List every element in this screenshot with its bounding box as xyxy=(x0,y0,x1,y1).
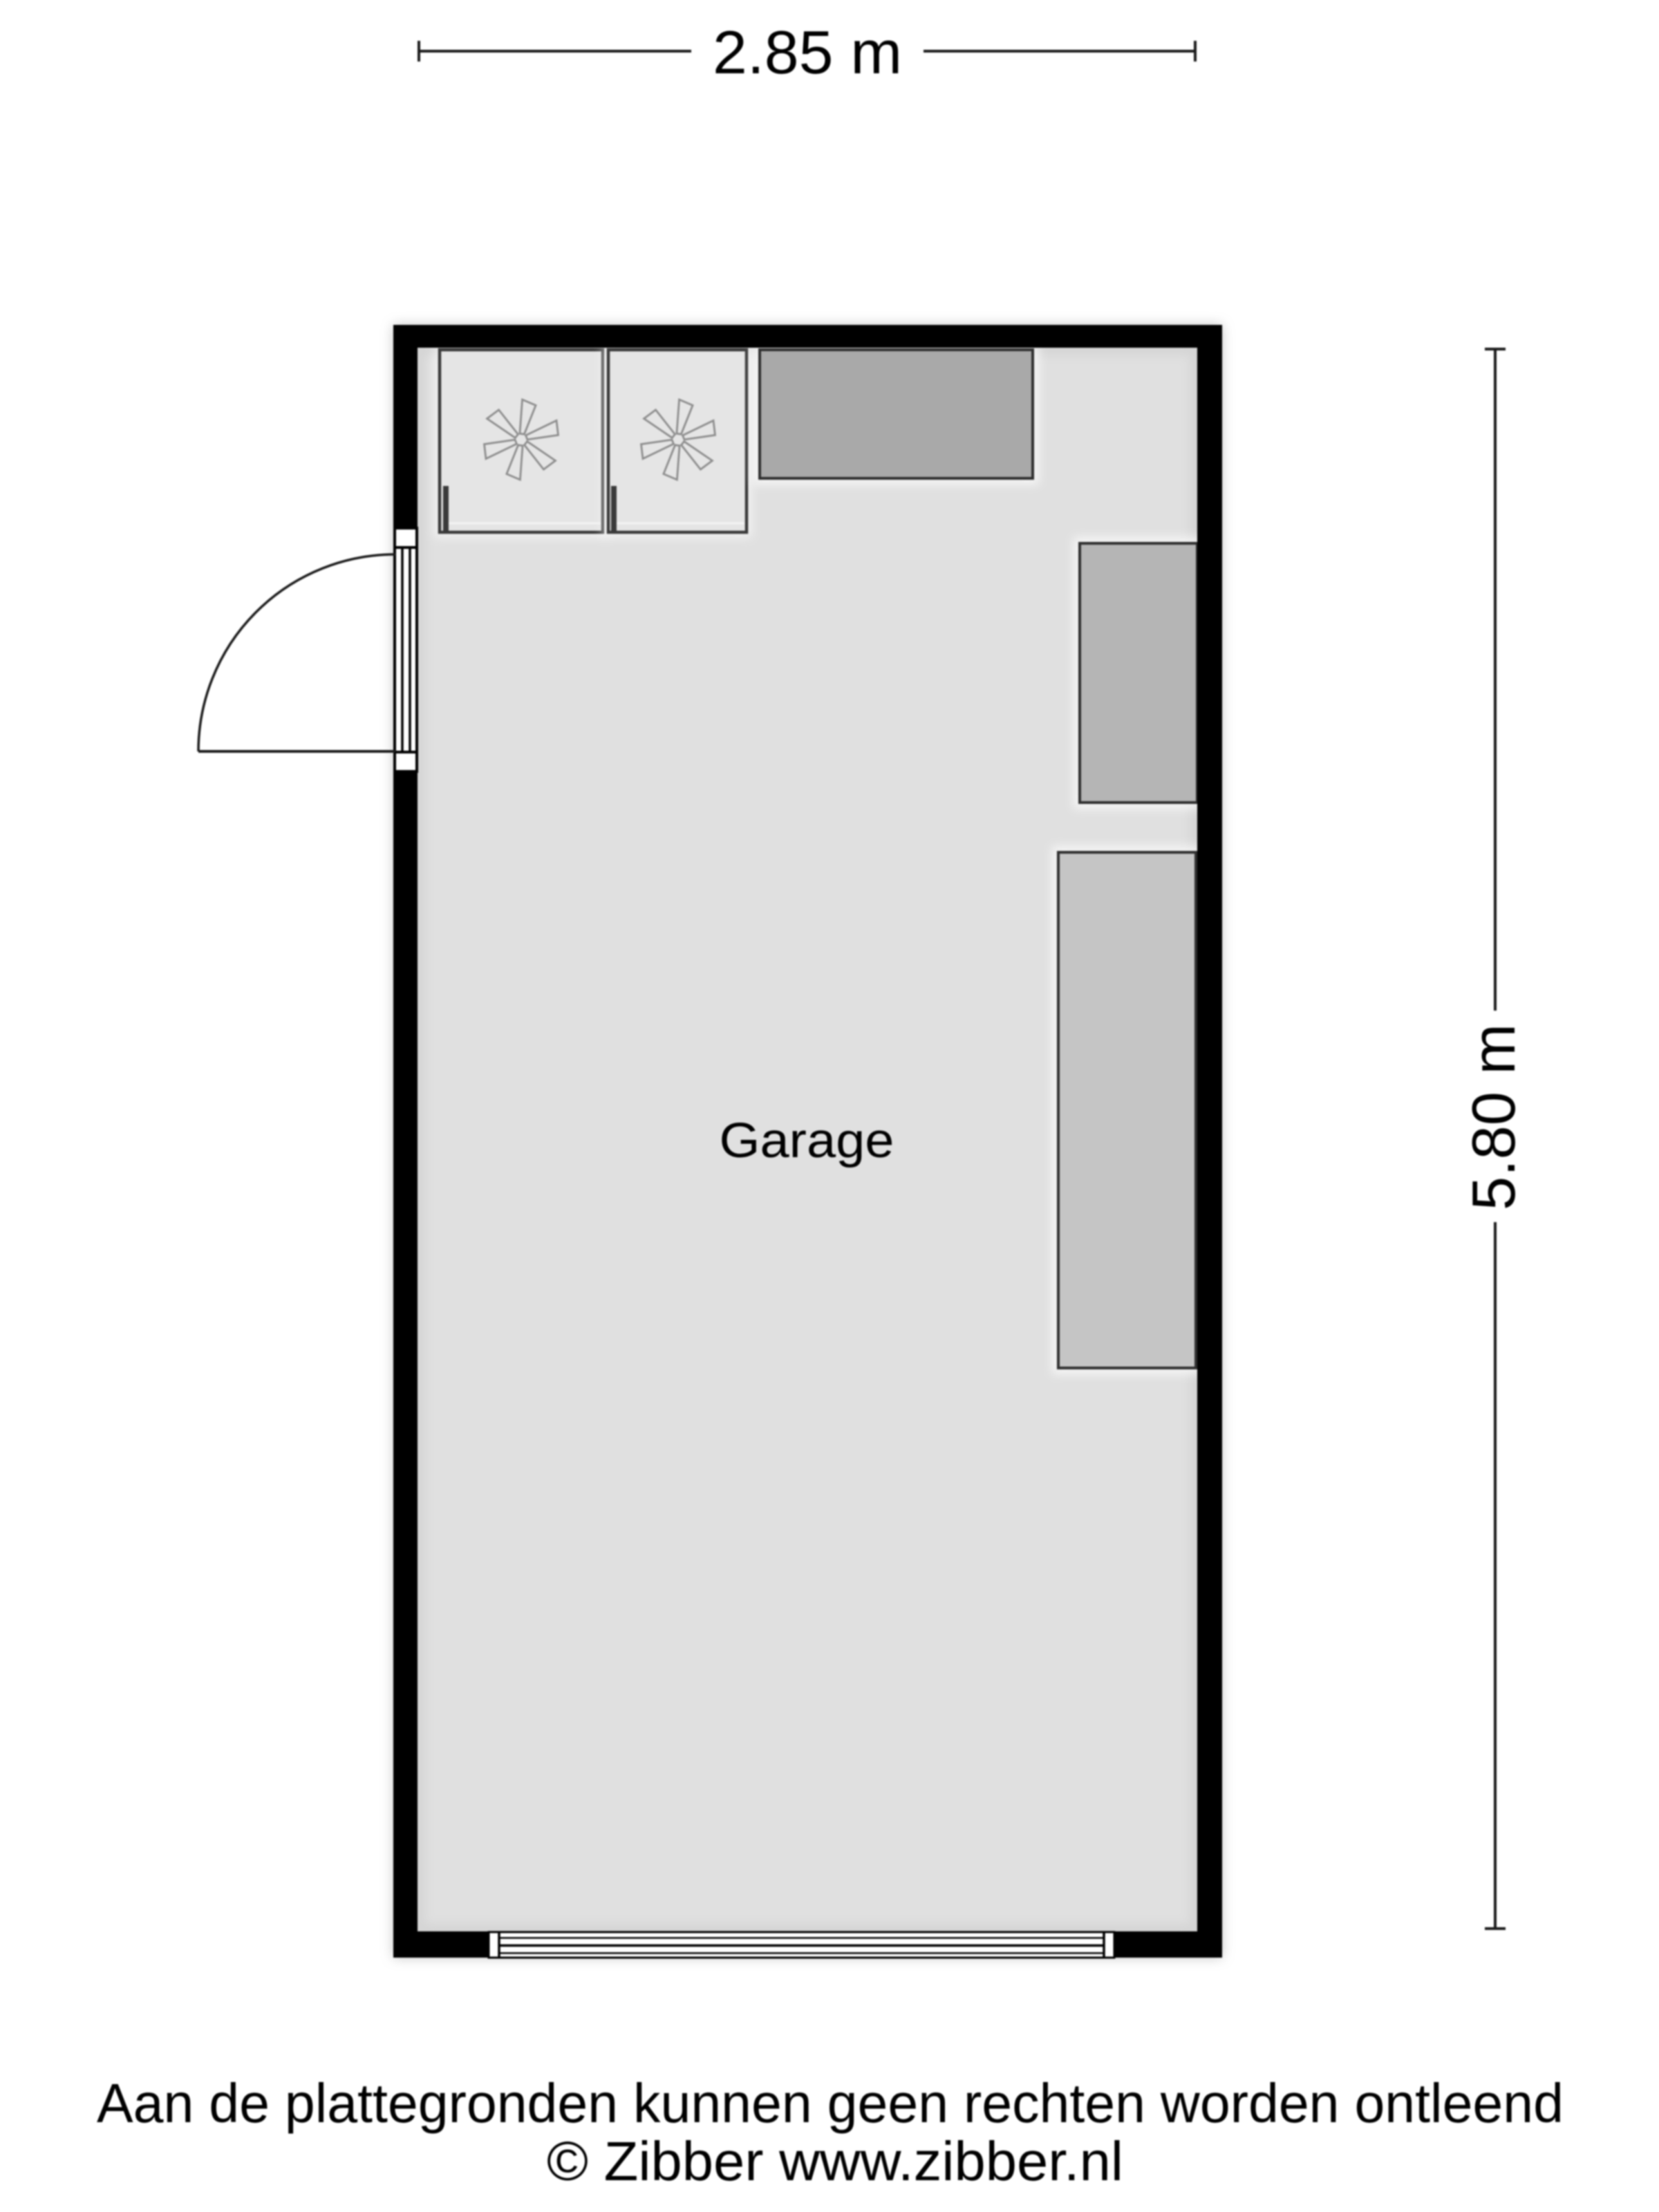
svg-text:2.85 m: 2.85 m xyxy=(713,18,902,86)
svg-text:5.80 m: 5.80 m xyxy=(1459,1024,1528,1210)
svg-text:Garage: Garage xyxy=(720,1114,894,1168)
svg-text:© Zibber www.zibber.nl: © Zibber www.zibber.nl xyxy=(547,2130,1123,2192)
svg-text:Aan de plattegronden kunnen ge: Aan de plattegronden kunnen geen rechten… xyxy=(97,2072,1564,2134)
